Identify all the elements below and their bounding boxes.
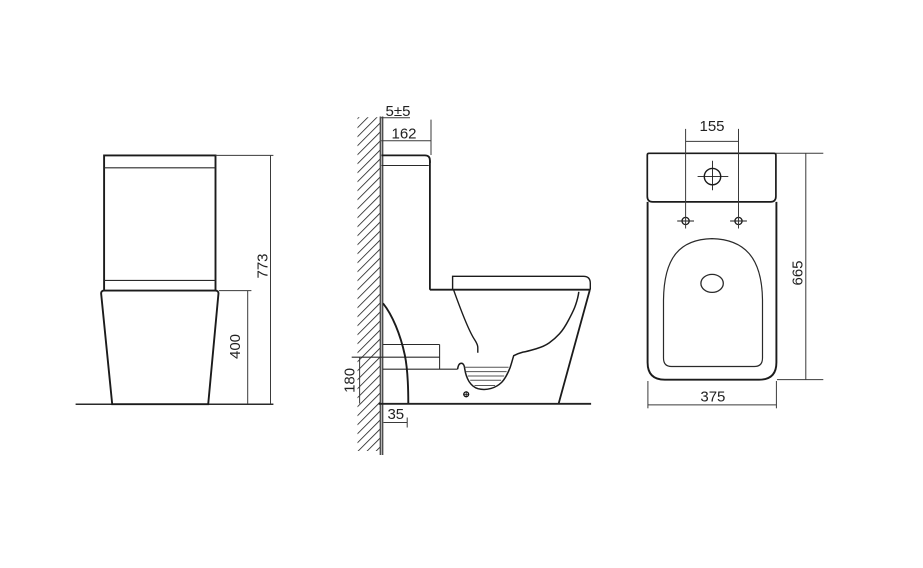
svg-text:773: 773	[254, 253, 271, 278]
svg-text:400: 400	[227, 334, 244, 359]
svg-text:162: 162	[391, 125, 416, 142]
svg-text:35: 35	[387, 406, 404, 423]
svg-text:375: 375	[700, 389, 725, 406]
svg-text:665: 665	[789, 260, 806, 285]
svg-text:180: 180	[341, 368, 358, 393]
svg-text:155: 155	[699, 118, 724, 135]
